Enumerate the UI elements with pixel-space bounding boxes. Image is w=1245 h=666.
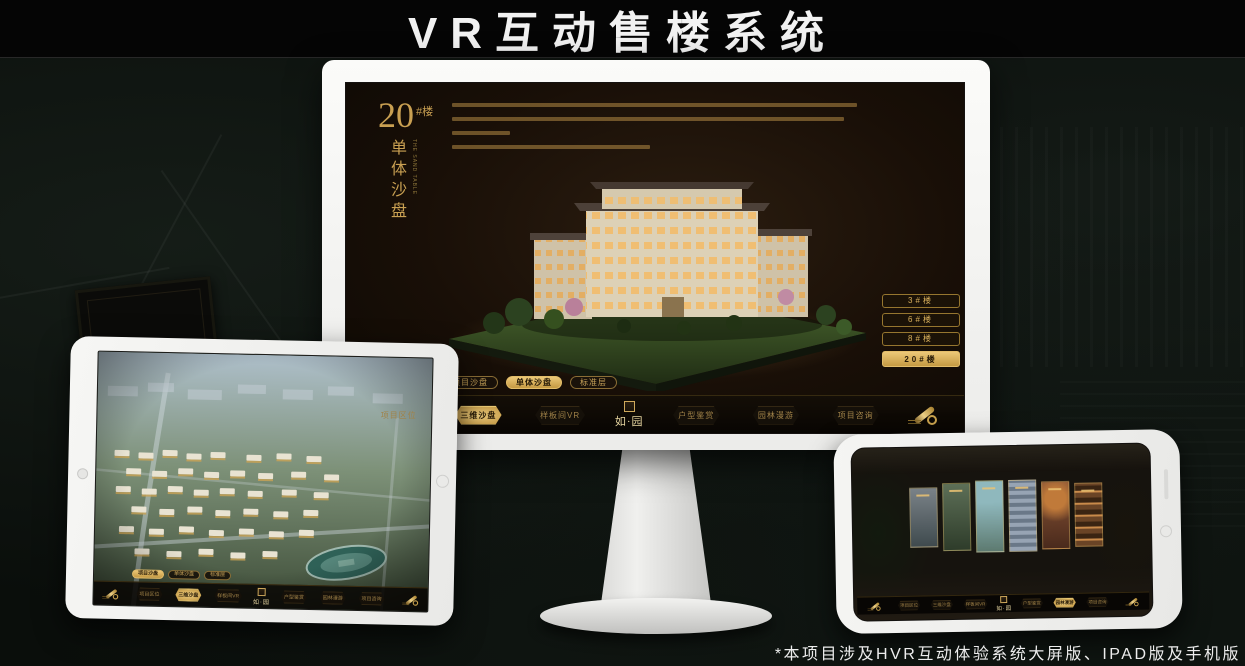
- tablet-tab-project-sandbox-selected[interactable]: 项目沙盘: [132, 569, 164, 579]
- building-3d-render: [434, 147, 874, 391]
- building-number-suffix: #楼: [416, 103, 433, 119]
- stage: VR互动售楼系统 20 #楼 单体沙盘 THE SAND TABLE: [0, 0, 1245, 666]
- building-number: 20: [378, 97, 414, 133]
- gallery-panel-shelves[interactable]: [1074, 482, 1103, 546]
- building-title-block: 20 #楼 单体沙盘 THE SAND TABLE: [378, 97, 433, 223]
- app-logo: 如·园: [253, 587, 270, 605]
- nav-item-showroom-vr[interactable]: 样板间VR: [212, 589, 244, 603]
- page-title: VR互动售楼系统: [408, 0, 837, 61]
- home-button-icon[interactable]: [436, 475, 449, 488]
- phone-screen: 项目区位 三维沙盘 样板间VR 如·园 户型鉴赏 园林漫游 项目咨询: [851, 443, 1154, 622]
- header: VR互动售楼系统: [0, 0, 1245, 58]
- tablet-tab-standard-floor[interactable]: 标准层: [204, 571, 231, 581]
- nav-item-3d-sandbox-selected[interactable]: 三维沙盘: [451, 406, 505, 425]
- nav-item-showroom-vr[interactable]: 样板间VR: [531, 406, 589, 425]
- gallery-panel-courtyard[interactable]: [942, 483, 971, 551]
- nav-item-3d-sandbox-selected[interactable]: 三维沙盘: [173, 588, 203, 602]
- seal-stamp-icon: [624, 401, 635, 412]
- nav-item-garden-tour[interactable]: 园林漫游: [318, 591, 348, 605]
- nav-item-location[interactable]: 项目区位: [134, 587, 164, 601]
- nav-item-location[interactable]: 项目区位: [896, 600, 922, 610]
- app-logo-text: 如·园: [615, 413, 644, 429]
- scroll-icon[interactable]: [402, 593, 419, 605]
- scroll-icon[interactable]: [102, 587, 119, 599]
- floor-button-3[interactable]: 3#楼: [882, 294, 960, 308]
- nav-item-garden-tour[interactable]: 园林漫游: [749, 406, 803, 425]
- phone-device: 项目区位 三维沙盘 样板间VR 如·园 户型鉴赏 园林漫游 项目咨询: [833, 429, 1182, 634]
- building-subtitle-english: THE SAND TABLE: [411, 139, 417, 223]
- tab-single-sandbox-selected[interactable]: 单体沙盘: [506, 376, 562, 389]
- footnote: *本项目涉及HVR互动体验系统大屏版、IPAD版及手机版: [775, 640, 1241, 664]
- seal-stamp-icon: [1000, 596, 1007, 603]
- nav-item-unit-plans[interactable]: 户型鉴赏: [669, 406, 723, 425]
- building-subtitle-vertical: 单体沙盘: [384, 139, 408, 223]
- app-logo: 如·园: [615, 401, 644, 429]
- nav-item-unit-plans[interactable]: 户型鉴赏: [279, 590, 309, 604]
- gallery-panel-building-day[interactable]: [975, 480, 1004, 552]
- nav-item-showroom-vr[interactable]: 样板间VR: [962, 599, 990, 609]
- monitor-stand-base: [540, 598, 772, 634]
- floor-button-8[interactable]: 8#楼: [882, 332, 960, 346]
- scroll-icon[interactable]: [908, 404, 938, 426]
- camera-icon: [1160, 525, 1172, 537]
- tablet-device: 项目沙盘 单体沙盘 标准层 项目区位 三维沙盘 样板间VR 如·园 户型鉴赏 园…: [65, 336, 459, 626]
- gallery-panel-interior[interactable]: [909, 487, 938, 547]
- scroll-icon[interactable]: [1125, 596, 1139, 606]
- scroll-icon[interactable]: [867, 601, 881, 611]
- sub-tab-group: 项目沙盘 单体沙盘 标准层: [442, 376, 617, 389]
- tab-standard-floor[interactable]: 标准层: [570, 376, 617, 389]
- camera-icon: [77, 468, 88, 479]
- gallery-panel-building-facade[interactable]: [1008, 480, 1037, 552]
- seal-stamp-icon: [258, 587, 266, 595]
- app-logo: 如·园: [996, 595, 1012, 611]
- speaker-slot-icon: [1164, 469, 1169, 499]
- gallery-panel-autumn[interactable]: [1041, 481, 1070, 549]
- nav-item-consult[interactable]: 项目咨询: [829, 406, 883, 425]
- app-logo-text: 如·园: [253, 596, 270, 605]
- background-buildings: [1000, 127, 1245, 367]
- floor-button-20-selected[interactable]: 20#楼: [882, 351, 960, 367]
- nav-item-3d-sandbox[interactable]: 三维沙盘: [929, 599, 955, 609]
- vr-gallery-panels: [909, 477, 1103, 553]
- floor-button-group: 3#楼 6#楼 8#楼 20#楼: [882, 294, 962, 372]
- tablet-screen: 项目沙盘 单体沙盘 标准层 项目区位 三维沙盘 样板间VR 如·园 户型鉴赏 园…: [92, 351, 433, 613]
- floor-button-6[interactable]: 6#楼: [882, 313, 960, 327]
- app-logo-text: 如·园: [996, 603, 1012, 611]
- nav-item-consult[interactable]: 项目咨询: [356, 592, 386, 606]
- nav-item-consult[interactable]: 项目咨询: [1084, 597, 1110, 607]
- tablet-tab-single-sandbox[interactable]: 单体沙盘: [168, 570, 200, 580]
- nav-item-unit-plans[interactable]: 户型鉴赏: [1019, 598, 1045, 608]
- nav-item-garden-tour-selected[interactable]: 园林漫游: [1052, 597, 1078, 607]
